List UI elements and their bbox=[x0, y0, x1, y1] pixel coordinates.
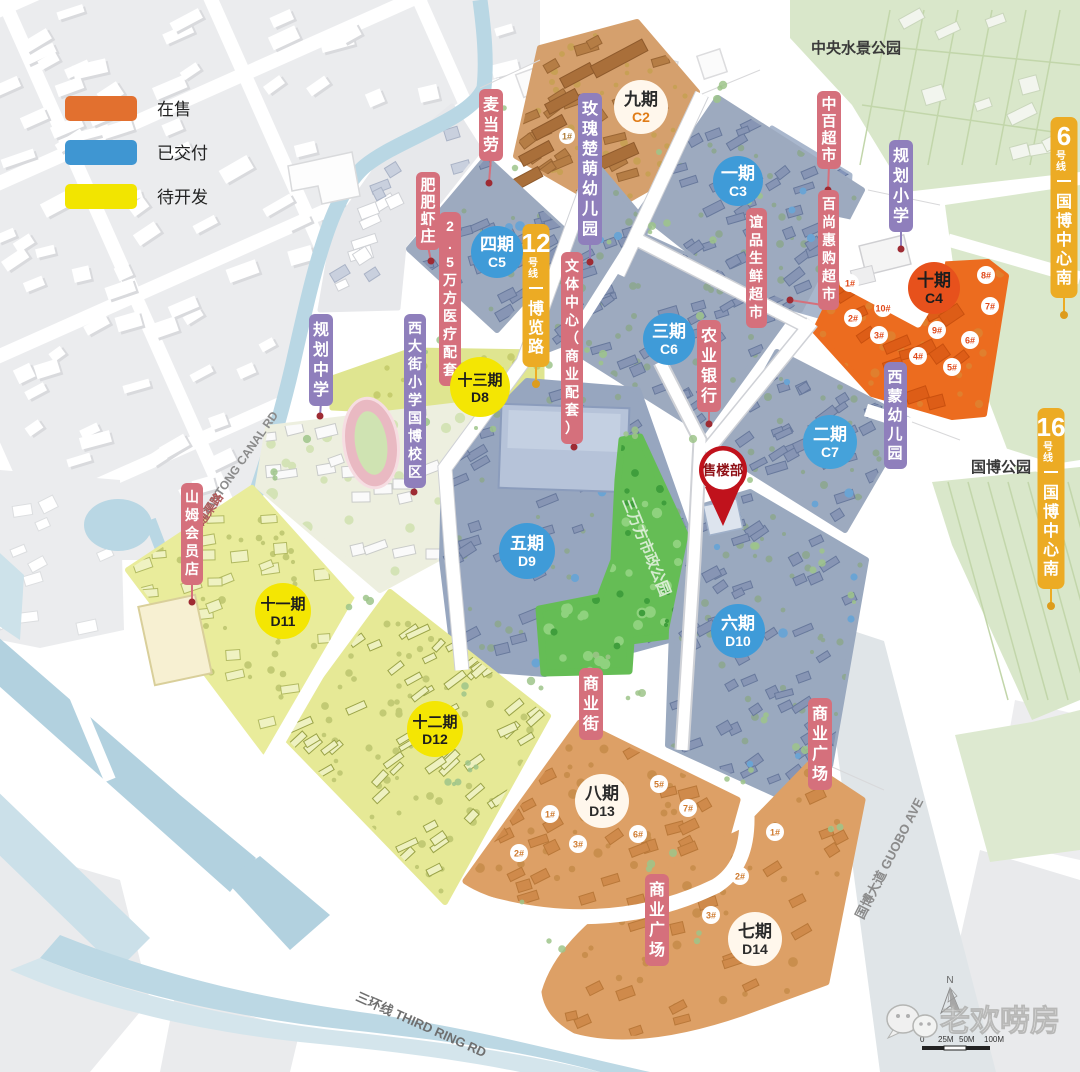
svg-text:10#: 10# bbox=[875, 304, 890, 314]
svg-text:规: 规 bbox=[313, 321, 329, 339]
svg-text:疗: 疗 bbox=[443, 326, 457, 342]
svg-text:C3: C3 bbox=[729, 183, 747, 199]
svg-text:南: 南 bbox=[1056, 268, 1072, 287]
svg-text:小: 小 bbox=[893, 187, 909, 205]
svg-text:D13: D13 bbox=[589, 803, 615, 819]
svg-text:鲜: 鲜 bbox=[749, 268, 763, 284]
svg-text:场: 场 bbox=[812, 765, 828, 783]
svg-text:9#: 9# bbox=[932, 326, 942, 336]
svg-text:百: 百 bbox=[822, 196, 836, 212]
svg-text:文: 文 bbox=[565, 258, 580, 274]
svg-text:1#: 1# bbox=[545, 810, 555, 820]
svg-text:5#: 5# bbox=[654, 780, 664, 790]
svg-text:店: 店 bbox=[185, 561, 199, 577]
svg-text:医: 医 bbox=[443, 308, 457, 324]
svg-text:七期: 七期 bbox=[738, 922, 772, 941]
svg-text:区: 区 bbox=[408, 464, 422, 480]
svg-text:中: 中 bbox=[1056, 230, 1072, 249]
svg-text:当: 当 bbox=[483, 115, 499, 134]
svg-text:C5: C5 bbox=[488, 254, 506, 270]
svg-text:D9: D9 bbox=[518, 553, 536, 569]
svg-text:3#: 3# bbox=[874, 331, 884, 341]
svg-text:广: 广 bbox=[812, 744, 828, 763]
svg-text:6#: 6# bbox=[965, 336, 975, 346]
svg-text:博: 博 bbox=[1043, 502, 1059, 521]
svg-text:业: 业 bbox=[812, 725, 828, 743]
svg-text:售楼部: 售楼部 bbox=[702, 462, 744, 478]
svg-text:N: N bbox=[946, 975, 953, 986]
svg-text:幼: 幼 bbox=[887, 406, 902, 424]
svg-text:十一期: 十一期 bbox=[260, 595, 305, 613]
svg-text:虾: 虾 bbox=[420, 210, 435, 228]
svg-text:大: 大 bbox=[408, 338, 422, 354]
svg-text:谊: 谊 bbox=[749, 214, 763, 230]
svg-text:线: 线 bbox=[1043, 451, 1053, 464]
svg-text:儿: 儿 bbox=[886, 426, 902, 443]
svg-text:业: 业 bbox=[701, 347, 717, 365]
svg-text:方: 方 bbox=[443, 290, 457, 306]
svg-text:生: 生 bbox=[749, 250, 763, 266]
svg-text:7#: 7# bbox=[985, 302, 995, 312]
svg-text:国: 国 bbox=[1043, 484, 1059, 502]
svg-text:员: 员 bbox=[185, 543, 199, 559]
svg-text:D11: D11 bbox=[271, 613, 296, 629]
svg-text:万: 万 bbox=[442, 272, 457, 288]
svg-text:6: 6 bbox=[1057, 121, 1071, 151]
svg-text:1#: 1# bbox=[845, 279, 855, 289]
svg-text:体: 体 bbox=[565, 276, 580, 292]
svg-text:广: 广 bbox=[649, 920, 665, 939]
svg-text:号: 号 bbox=[1056, 150, 1066, 162]
svg-text:九期: 九期 bbox=[623, 90, 658, 109]
svg-text:山: 山 bbox=[185, 489, 199, 505]
svg-text:2#: 2# bbox=[735, 872, 745, 882]
svg-text:学: 学 bbox=[313, 380, 329, 399]
svg-text:国: 国 bbox=[1056, 193, 1072, 211]
svg-text:8#: 8# bbox=[981, 271, 991, 281]
svg-text:商: 商 bbox=[565, 348, 579, 364]
svg-text:超: 超 bbox=[821, 268, 837, 284]
svg-text:3#: 3# bbox=[706, 911, 716, 921]
svg-text:中: 中 bbox=[1043, 521, 1059, 540]
svg-text:中: 中 bbox=[565, 294, 579, 310]
svg-text:楚: 楚 bbox=[582, 139, 599, 158]
svg-text:超: 超 bbox=[748, 286, 764, 302]
svg-text:C7: C7 bbox=[821, 444, 839, 460]
svg-text:肥: 肥 bbox=[420, 194, 435, 211]
svg-text:市: 市 bbox=[822, 286, 836, 302]
svg-text:学: 学 bbox=[893, 206, 909, 225]
svg-text:划: 划 bbox=[313, 340, 329, 359]
svg-text:1#: 1# bbox=[770, 828, 780, 838]
svg-text:商: 商 bbox=[649, 880, 665, 899]
svg-text:劳: 劳 bbox=[483, 135, 499, 154]
svg-text:2#: 2# bbox=[514, 849, 524, 859]
svg-text:五期: 五期 bbox=[510, 534, 544, 553]
svg-text:街: 街 bbox=[582, 714, 599, 733]
svg-text:一期: 一期 bbox=[721, 164, 755, 183]
svg-text:已交付: 已交付 bbox=[157, 144, 208, 163]
svg-text:号: 号 bbox=[1043, 441, 1053, 453]
svg-text:线: 线 bbox=[528, 267, 538, 280]
svg-text:超: 超 bbox=[820, 129, 837, 147]
svg-text:行: 行 bbox=[700, 386, 717, 405]
svg-text:在售: 在售 bbox=[157, 100, 191, 119]
svg-text:姆: 姆 bbox=[184, 507, 199, 523]
svg-text:博: 博 bbox=[1056, 211, 1072, 230]
svg-text:4#: 4# bbox=[913, 352, 923, 362]
svg-text:C6: C6 bbox=[660, 341, 678, 357]
svg-text:）: ） bbox=[565, 420, 579, 436]
svg-text:规: 规 bbox=[893, 147, 909, 165]
svg-text:国: 国 bbox=[408, 410, 422, 426]
svg-text:场: 场 bbox=[649, 941, 665, 959]
svg-text:麦: 麦 bbox=[483, 96, 500, 114]
svg-text:银: 银 bbox=[701, 366, 718, 385]
svg-text:2#: 2# bbox=[848, 314, 858, 324]
svg-text:16: 16 bbox=[1037, 412, 1066, 442]
svg-text:国博公园: 国博公园 bbox=[971, 458, 1031, 476]
svg-text:5#: 5# bbox=[947, 363, 957, 373]
svg-text:D12: D12 bbox=[422, 731, 448, 747]
svg-text:园: 园 bbox=[887, 445, 902, 462]
svg-text:十二期: 十二期 bbox=[412, 713, 457, 731]
svg-text:12: 12 bbox=[522, 228, 551, 258]
svg-text:业: 业 bbox=[649, 901, 665, 919]
svg-text:中: 中 bbox=[313, 360, 329, 379]
svg-text:尚: 尚 bbox=[822, 214, 836, 230]
svg-text:1#: 1# bbox=[562, 132, 572, 142]
svg-text:5: 5 bbox=[446, 254, 454, 270]
svg-text:幼: 幼 bbox=[582, 179, 598, 198]
svg-text:会: 会 bbox=[185, 525, 200, 541]
svg-text:校: 校 bbox=[408, 446, 423, 462]
svg-text:玫: 玫 bbox=[582, 99, 599, 118]
svg-text:（: （ bbox=[565, 330, 579, 346]
svg-text:肥: 肥 bbox=[420, 177, 435, 194]
svg-text:号: 号 bbox=[528, 257, 538, 269]
svg-text:西: 西 bbox=[408, 320, 422, 336]
svg-text:四期: 四期 bbox=[480, 235, 514, 254]
svg-text:D10: D10 bbox=[725, 633, 751, 649]
svg-text:划: 划 bbox=[893, 166, 909, 185]
svg-text:老欢唠房: 老欢唠房 bbox=[940, 1005, 1060, 1038]
svg-text:惠: 惠 bbox=[822, 232, 836, 248]
svg-text:西: 西 bbox=[887, 369, 902, 386]
svg-text:C4: C4 bbox=[925, 290, 943, 306]
svg-text:览: 览 bbox=[528, 318, 544, 337]
svg-text:套: 套 bbox=[565, 402, 579, 418]
svg-text:十期: 十期 bbox=[917, 270, 951, 290]
svg-text:儿: 儿 bbox=[581, 200, 598, 218]
svg-text:商: 商 bbox=[812, 704, 828, 723]
svg-text:街: 街 bbox=[407, 356, 422, 372]
svg-text:蒙: 蒙 bbox=[887, 387, 902, 405]
svg-text:C2: C2 bbox=[632, 109, 650, 125]
svg-text:博: 博 bbox=[528, 299, 544, 318]
svg-text:农: 农 bbox=[700, 326, 717, 345]
svg-text:7#: 7# bbox=[683, 804, 693, 814]
svg-text:博: 博 bbox=[408, 428, 422, 444]
svg-text:路: 路 bbox=[528, 337, 545, 356]
svg-text:三期: 三期 bbox=[652, 322, 686, 341]
svg-text:中央水景公园: 中央水景公园 bbox=[811, 39, 901, 57]
svg-text:小: 小 bbox=[408, 374, 422, 390]
svg-text:业: 业 bbox=[565, 366, 579, 382]
svg-text:D8: D8 bbox=[471, 389, 489, 405]
svg-text:购: 购 bbox=[822, 250, 836, 266]
svg-text:品: 品 bbox=[749, 232, 763, 248]
svg-text:萌: 萌 bbox=[582, 159, 598, 178]
svg-text:百: 百 bbox=[821, 113, 836, 130]
svg-text:2: 2 bbox=[446, 218, 454, 234]
svg-text:心: 心 bbox=[1043, 541, 1059, 559]
svg-text:D14: D14 bbox=[742, 941, 768, 957]
svg-text:心: 心 bbox=[1056, 250, 1072, 268]
svg-text:.: . bbox=[448, 236, 452, 252]
svg-text:市: 市 bbox=[821, 146, 836, 164]
svg-text:十三期: 十三期 bbox=[457, 371, 502, 389]
svg-text:六期: 六期 bbox=[721, 613, 755, 633]
svg-text:八期: 八期 bbox=[585, 784, 619, 803]
svg-text:业: 业 bbox=[583, 695, 599, 713]
svg-text:瑰: 瑰 bbox=[582, 119, 598, 138]
svg-text:园: 园 bbox=[582, 220, 598, 238]
svg-text:中: 中 bbox=[821, 95, 836, 113]
svg-text:南: 南 bbox=[1043, 559, 1059, 578]
svg-text:3#: 3# bbox=[573, 840, 583, 850]
svg-text:二期: 二期 bbox=[813, 425, 847, 444]
svg-text:学: 学 bbox=[408, 392, 422, 408]
svg-text:6#: 6# bbox=[633, 830, 643, 840]
svg-text:商: 商 bbox=[583, 674, 599, 693]
svg-text:庄: 庄 bbox=[420, 227, 435, 245]
svg-text:待开发: 待开发 bbox=[157, 188, 208, 207]
svg-text:市: 市 bbox=[749, 304, 763, 320]
svg-text:心: 心 bbox=[565, 312, 579, 328]
svg-text:配: 配 bbox=[565, 384, 579, 400]
svg-text:配: 配 bbox=[443, 344, 457, 360]
svg-text:线: 线 bbox=[1056, 160, 1066, 173]
